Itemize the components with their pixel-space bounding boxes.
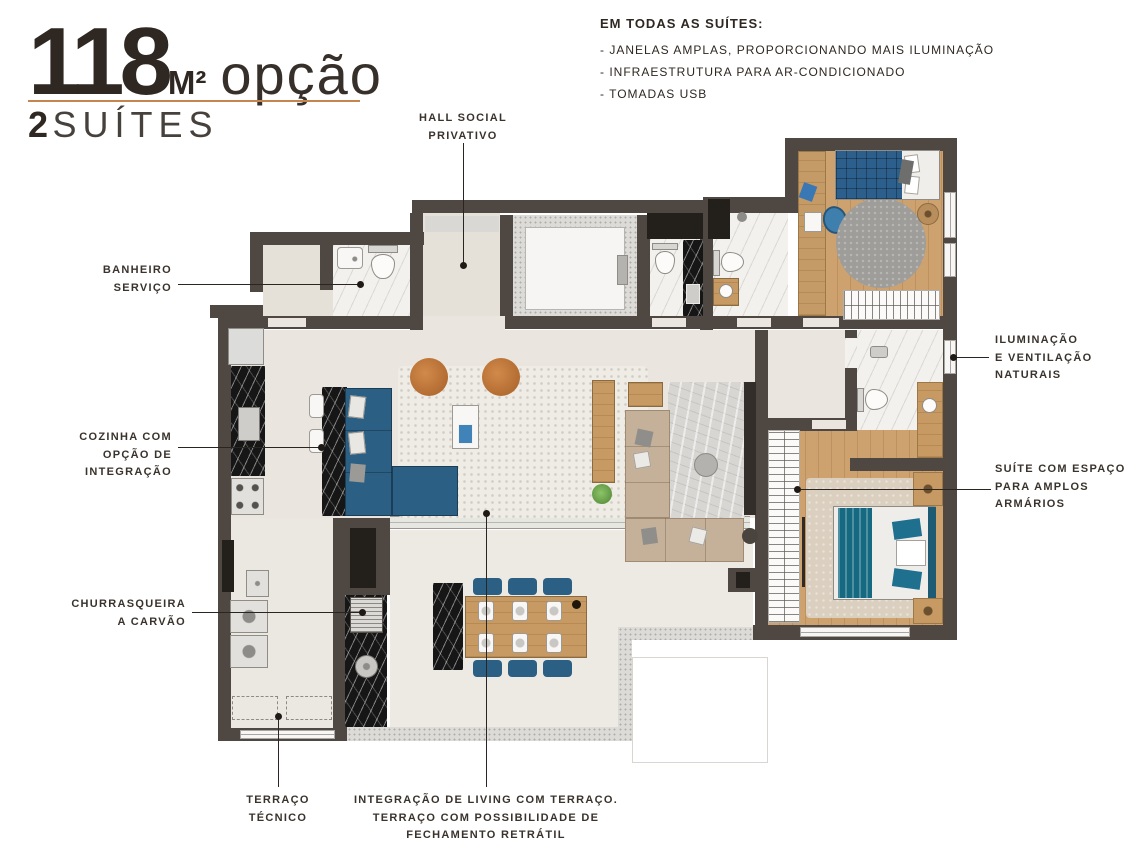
side-table — [742, 528, 758, 544]
feature-item: - INFRAESTRUTURA PARA AR-CONDICIONADO — [600, 61, 994, 83]
callout-cozinha: COZINHA COM OPÇÃO DE INTEGRAÇÃO — [38, 429, 172, 482]
bed-pillow-teal — [892, 568, 922, 590]
lavabo-niche — [647, 213, 703, 239]
feature-item: - JANELAS AMPLAS, PROPORCIONANDO MAIS IL… — [600, 39, 994, 61]
toilet-tank — [368, 245, 398, 253]
sofa-pillow — [641, 527, 658, 545]
suite1-window — [944, 243, 956, 277]
dining-chair — [473, 660, 502, 677]
callout-hall-social: HALL SOCIAL PRIVATIVO — [380, 110, 546, 145]
leader-dot-hall — [460, 262, 467, 269]
suite1-window — [944, 192, 956, 238]
callout-line: CHURRASQUEIRA — [38, 596, 186, 614]
shower-head — [737, 212, 747, 222]
bar-stool — [309, 394, 324, 418]
place-setting — [512, 633, 528, 653]
lavabo-counter — [683, 240, 703, 316]
nightstand — [913, 598, 943, 624]
bathroom-sink — [337, 247, 363, 269]
features-block: EM TODAS AS SUÍTES: - JANELAS AMPLAS, PR… — [600, 16, 994, 105]
sofa-pillow — [633, 451, 652, 470]
wall — [250, 232, 424, 245]
bed-pillow-teal — [892, 518, 922, 540]
pouf-armchair — [410, 358, 448, 396]
callout-churrasqueira: CHURRASQUEIRA A CARVÃO — [38, 596, 186, 631]
page-subtitle: 2 SUÍTES — [28, 104, 219, 146]
pouf-armchair — [482, 358, 520, 396]
callout-line: SUÍTE COM ESPAÇO — [995, 461, 1145, 479]
bed-pillow — [896, 540, 926, 566]
appliance-reservation — [286, 696, 332, 720]
leader-banheiro — [178, 284, 360, 285]
fridge — [228, 328, 264, 365]
elevator-cab — [525, 227, 625, 310]
callout-line: ILUMINAÇÃO — [995, 332, 1145, 350]
kitchen-island — [322, 387, 347, 516]
bath-niche — [708, 199, 730, 239]
vanity-sink — [922, 398, 937, 413]
area-number: 118 — [28, 8, 168, 115]
nightstand-round — [917, 203, 939, 225]
callout-line: PARA AMPLOS — [995, 479, 1145, 497]
closet-bench — [802, 517, 805, 587]
wall — [412, 200, 713, 213]
title-underline — [28, 100, 360, 102]
tv-area-rug — [668, 382, 745, 518]
blue-sofa-chaise — [392, 466, 458, 516]
dining-chair — [543, 660, 572, 677]
callout-line: PRIVATIVO — [380, 128, 546, 146]
sofa-pillow — [348, 395, 367, 419]
callout-line: NATURAIS — [995, 367, 1145, 385]
floorplan-page: 118M²opção 2 SUÍTES EM TODAS AS SUÍTES: … — [0, 0, 1146, 843]
leader-terraco-tecnico — [278, 719, 279, 787]
place-setting — [546, 601, 562, 621]
parapet-right — [618, 627, 632, 741]
desk-tray — [804, 212, 822, 232]
area-suffix: opção — [220, 43, 383, 106]
callout-line: TÉCNICO — [228, 810, 328, 828]
suite2-window — [800, 627, 910, 637]
elevator-door — [617, 255, 628, 285]
door-opening — [845, 338, 857, 368]
subtitle-number: 2 — [28, 104, 48, 145]
parapet-bottom — [347, 727, 632, 741]
door-opening — [320, 290, 333, 316]
console-table — [628, 382, 663, 407]
page-title: 118M²opção — [28, 14, 383, 110]
suite1-bed-quilt — [836, 151, 902, 199]
wall — [943, 470, 957, 640]
suite1-closet — [843, 290, 940, 320]
wall — [850, 458, 957, 471]
callout-line: FECHAMENTO RETRÁTIL — [340, 827, 632, 843]
dining-chair — [508, 578, 537, 595]
wall — [500, 215, 513, 322]
callout-line: HALL SOCIAL — [380, 110, 546, 128]
leader-dot-iluminacao — [950, 354, 957, 361]
place-setting — [546, 633, 562, 653]
washer — [230, 600, 268, 633]
appliance-reservation — [232, 696, 278, 720]
suite1-desk — [798, 151, 826, 316]
toilet-tank — [857, 388, 864, 412]
coffee-table — [694, 453, 718, 477]
door-opening — [812, 420, 846, 429]
callout-banheiro-servico: BANHEIRO SERVIÇO — [40, 262, 172, 297]
leader-dot-terraco-tecnico — [275, 713, 282, 720]
leader-dot-cozinha — [318, 444, 325, 451]
tv-panel — [744, 382, 756, 515]
leader-churrasqueira — [192, 612, 362, 613]
bath-faucet — [870, 346, 888, 358]
callout-suite-armarios: SUÍTE COM ESPAÇO PARA AMPLOS ARMÁRIOS — [995, 461, 1145, 514]
sideboard — [592, 380, 615, 483]
toilet-tank — [652, 243, 678, 250]
callout-line: OPÇÃO DE — [38, 447, 172, 465]
toilet-tank — [713, 250, 720, 276]
callout-line: ARMÁRIOS — [995, 496, 1145, 514]
wall — [410, 213, 423, 330]
suites-corridor-floor — [768, 330, 845, 418]
console-art — [458, 424, 473, 444]
area-unit: M² — [168, 64, 206, 101]
suite2-headboard — [928, 507, 936, 599]
callout-line: E VENTILAÇÃO — [995, 350, 1145, 368]
place-setting — [512, 601, 528, 621]
leader-dot-integracao — [483, 510, 490, 517]
callout-line: INTEGRAÇÃO — [38, 464, 172, 482]
stove — [231, 478, 264, 515]
door-opening — [268, 318, 306, 327]
callout-line: A CARVÃO — [38, 614, 186, 632]
callout-iluminacao: ILUMINAÇÃO E VENTILAÇÃO NATURAIS — [995, 332, 1145, 385]
laundry-counter — [222, 540, 234, 592]
entry-corridor-floor — [263, 245, 320, 316]
wall — [250, 232, 263, 292]
callout-line: BANHEIRO — [40, 262, 172, 280]
door-opening — [423, 316, 505, 330]
dining-chair — [508, 660, 537, 677]
wall — [218, 317, 231, 741]
suite2-bed-throw — [838, 508, 872, 598]
leader-iluminacao — [957, 357, 989, 358]
suite2-closet — [768, 430, 800, 623]
wall — [320, 240, 333, 290]
parapet-top-right — [618, 627, 753, 640]
hall-cabinet — [425, 216, 499, 232]
wall — [755, 330, 768, 627]
leader-cozinha — [178, 447, 321, 448]
sofa-pillow — [635, 429, 654, 448]
slab-outline — [632, 657, 768, 763]
dryer — [230, 635, 268, 668]
sofa-pillow — [348, 431, 366, 455]
plant — [592, 484, 612, 504]
suite1-rug — [836, 198, 926, 288]
laundry-sink — [246, 570, 269, 597]
storage-niche — [736, 572, 750, 588]
bbq-sink — [355, 655, 378, 678]
callout-integracao: INTEGRAÇÃO DE LIVING COM TERRAÇO. TERRAÇ… — [340, 792, 632, 843]
leader-dot-banheiro — [357, 281, 364, 288]
leader-dot-churrasqueira — [359, 609, 366, 616]
lavabo-sink — [686, 284, 700, 304]
features-heading: EM TODAS AS SUÍTES: — [600, 16, 994, 31]
door-opening — [652, 318, 686, 327]
leader-suite — [801, 489, 991, 490]
dining-chair — [543, 578, 572, 595]
feature-item: - TOMADAS USB — [600, 83, 994, 105]
leader-hall — [463, 143, 464, 265]
callout-line: TERRAÇO — [228, 792, 328, 810]
terrace-counter — [433, 583, 463, 670]
callout-line: SERVIÇO — [40, 280, 172, 298]
vanity-sink — [719, 284, 733, 298]
kitchen-sink — [238, 407, 260, 441]
callout-terraco-tecnico: TERRAÇO TÉCNICO — [228, 792, 328, 827]
leader-dot-suite — [794, 486, 801, 493]
callout-line: TERRAÇO COM POSSIBILIDADE DE — [340, 810, 632, 828]
tech-terrace-window — [240, 730, 335, 739]
subtitle-text: SUÍTES — [52, 104, 218, 145]
wall — [943, 151, 957, 330]
callout-line: INTEGRAÇÃO DE LIVING COM TERRAÇO. — [340, 792, 632, 810]
vanity — [917, 382, 943, 458]
callout-line: COZINHA COM — [38, 429, 172, 447]
storage-niche — [350, 528, 376, 588]
sofa-pillow — [349, 463, 366, 482]
door-opening — [737, 318, 771, 327]
charcoal-grill — [350, 597, 383, 633]
door-opening — [803, 318, 839, 327]
leader-integracao — [486, 515, 487, 787]
table-decor — [572, 600, 581, 609]
dining-chair — [473, 578, 502, 595]
